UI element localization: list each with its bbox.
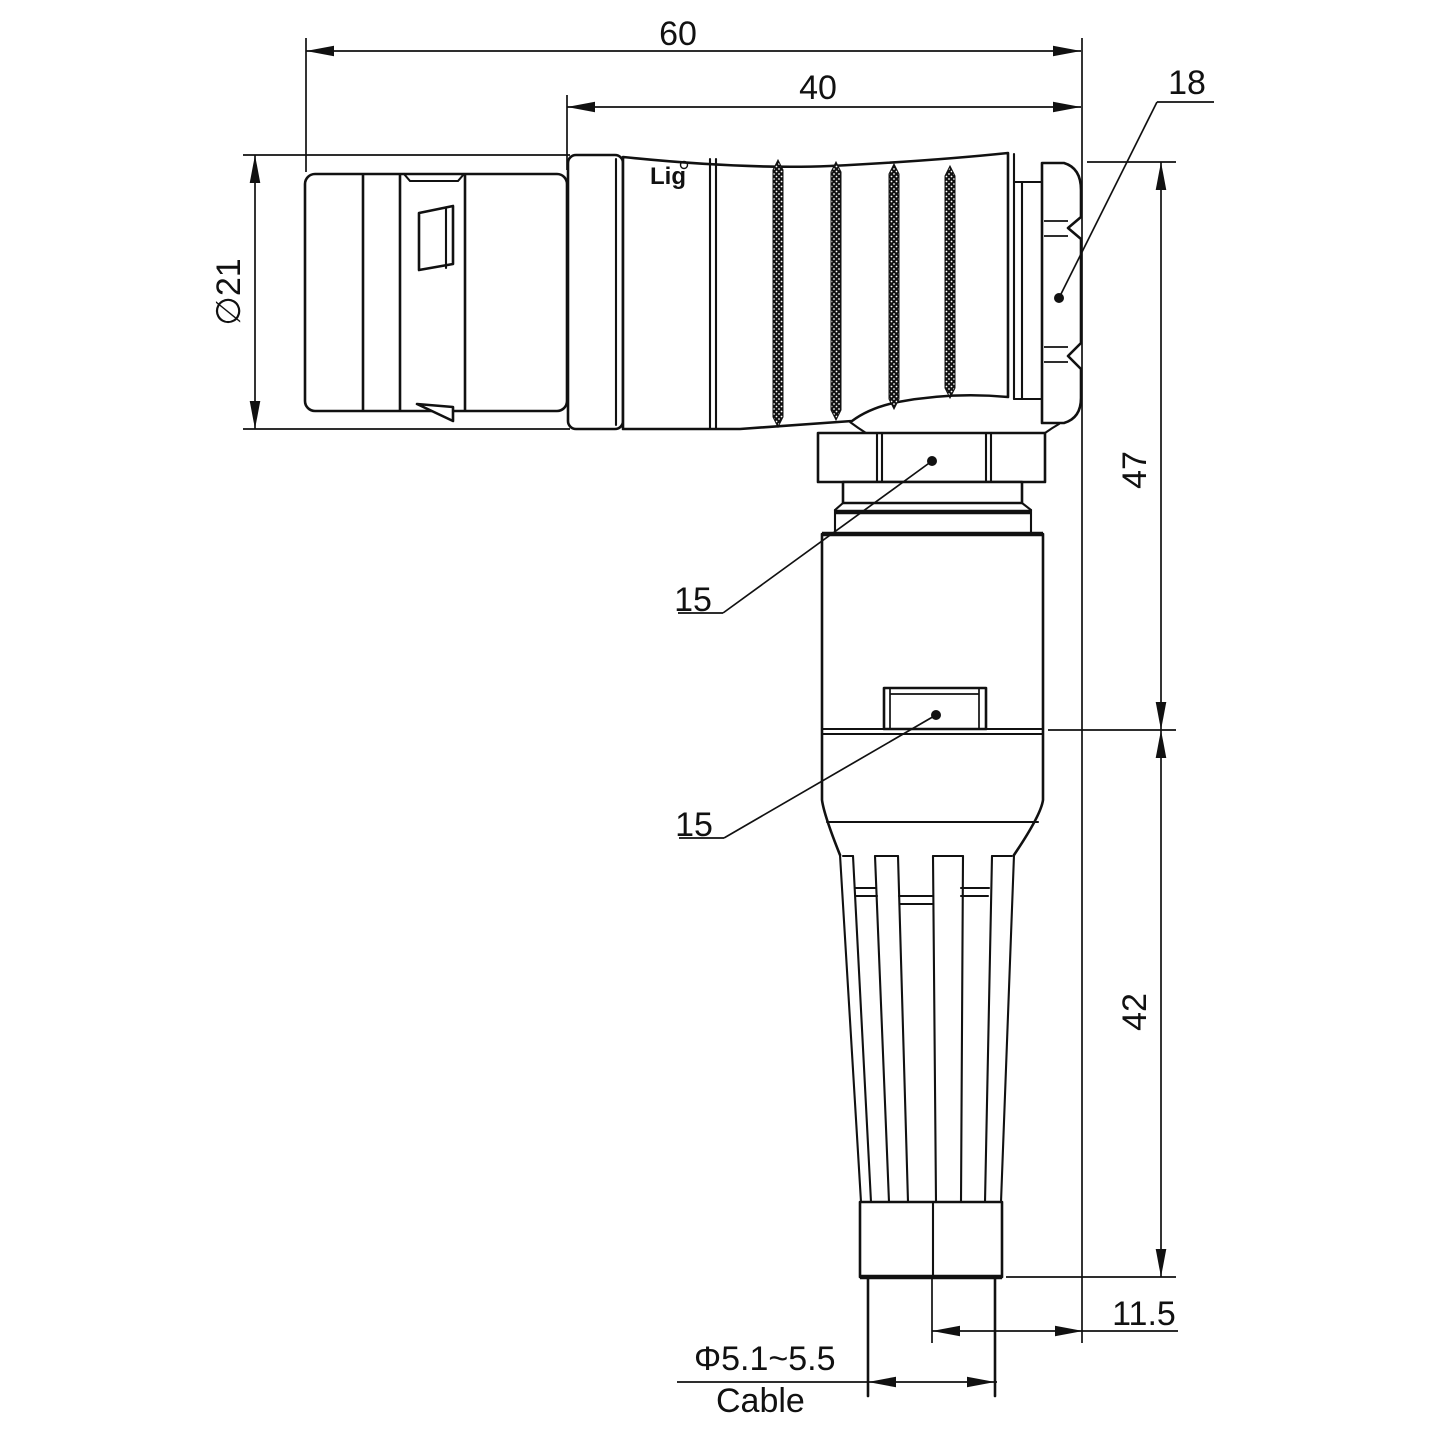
knurl-band <box>889 164 899 409</box>
strain-relief <box>840 855 1014 1202</box>
ferrule <box>860 1202 1002 1277</box>
knurl-band <box>773 160 783 427</box>
knurl-band <box>945 166 955 398</box>
dim-overall-length: 60 <box>659 15 697 53</box>
leader-dot <box>931 710 941 720</box>
dim-axis-to-face: 11.5 <box>1112 1295 1176 1333</box>
leader-dot <box>927 456 937 466</box>
cable <box>868 1277 995 1396</box>
technical-drawing-page: Lightany <box>0 0 1440 1440</box>
front-sleeve <box>305 174 567 421</box>
elbow-neck <box>835 482 1031 533</box>
leader-dot <box>1054 293 1064 303</box>
dim-rear-length: 40 <box>799 69 837 107</box>
dim-shell-diameter: ∅21 <box>210 258 248 325</box>
dim-ref-body: 15 <box>675 806 713 844</box>
dim-height-upper: 47 <box>1116 451 1154 489</box>
dim-ref-coupling-nut: 15 <box>674 581 712 619</box>
dim-cable-diameter: Φ5.1~5.5 <box>694 1340 836 1378</box>
dim-height-lower: 42 <box>1116 993 1154 1031</box>
shell-ring <box>568 155 623 429</box>
connector-part: Lig <box>305 153 1081 1396</box>
knurl-band <box>831 162 841 420</box>
dim-nut-across-flats: 18 <box>1168 64 1206 102</box>
cable-label: Cable <box>716 1382 805 1420</box>
connector-drawing: Lightany <box>0 0 1440 1440</box>
latch-key <box>419 206 453 270</box>
elbow-body <box>822 534 1043 855</box>
knurled-barrel: Lig <box>623 153 1042 433</box>
latch-clip <box>417 404 453 421</box>
